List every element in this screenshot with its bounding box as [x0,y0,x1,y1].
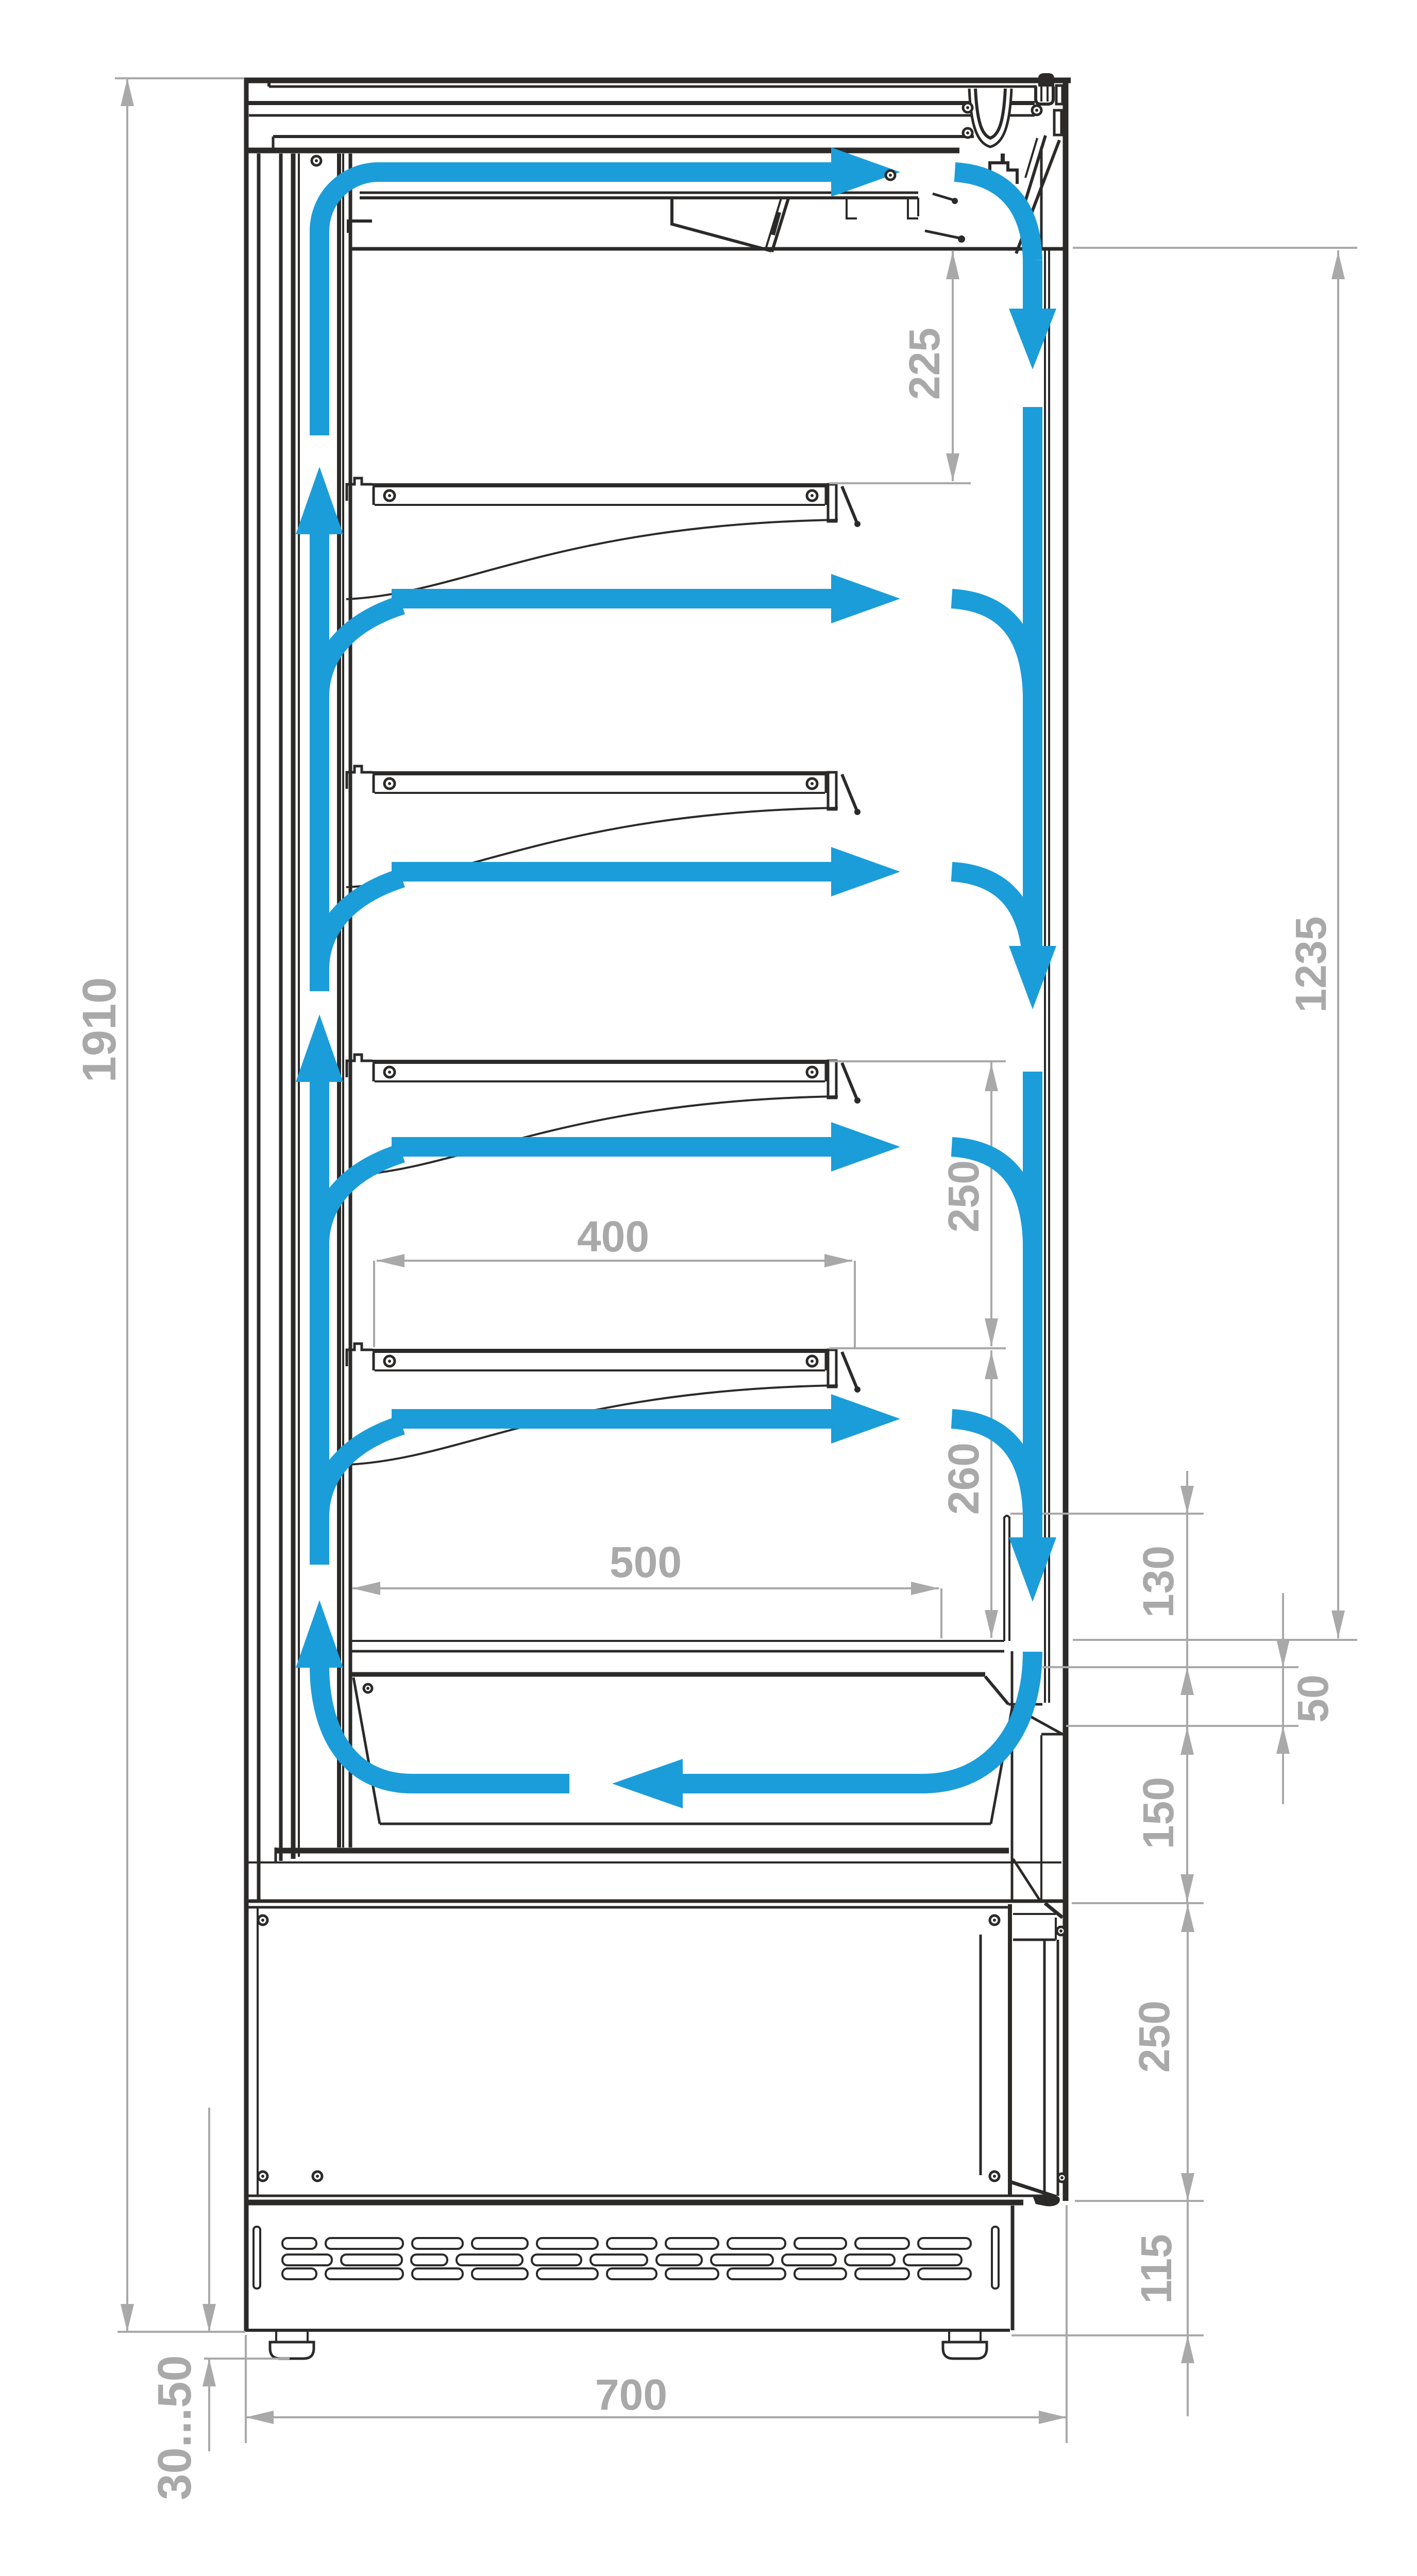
svg-text:115: 115 [1132,2234,1180,2304]
svg-text:50: 50 [1289,1674,1337,1722]
svg-text:130: 130 [1134,1546,1183,1618]
svg-text:700: 700 [595,2370,667,2419]
svg-text:1910: 1910 [73,977,126,1083]
svg-text:225: 225 [900,328,949,400]
svg-text:400: 400 [577,1212,649,1261]
svg-text:150: 150 [1134,1777,1183,1849]
svg-text:250: 250 [939,1160,988,1232]
svg-text:30...50: 30...50 [148,2355,201,2500]
svg-text:260: 260 [939,1443,988,1515]
svg-text:1235: 1235 [1287,917,1335,1013]
svg-text:250: 250 [1130,2001,1178,2073]
svg-text:500: 500 [610,1538,682,1586]
